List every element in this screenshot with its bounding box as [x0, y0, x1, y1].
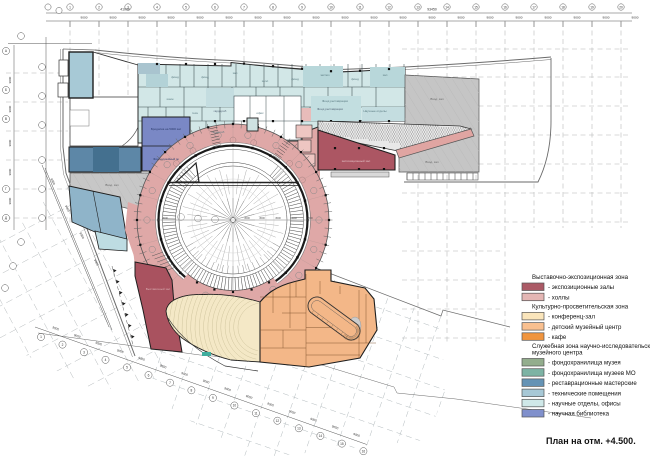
svg-text:4500: 4500	[162, 216, 168, 220]
svg-text:11: 11	[254, 411, 258, 415]
svg-text:9000: 9000	[400, 16, 407, 20]
svg-text:5: 5	[185, 5, 187, 9]
svg-text:6: 6	[148, 373, 150, 377]
svg-text:1: 1	[69, 5, 71, 9]
svg-text:6: 6	[214, 5, 216, 9]
svg-text:93450: 93450	[427, 8, 437, 12]
svg-text:Вход. зал: Вход. зал	[425, 160, 438, 164]
svg-text:4500: 4500	[259, 216, 265, 220]
svg-text:17: 17	[532, 5, 536, 9]
svg-text:7: 7	[243, 5, 245, 9]
svg-text:9000: 9000	[197, 16, 204, 20]
svg-text:14: 14	[445, 5, 449, 9]
svg-text:9000: 9000	[81, 16, 88, 20]
svg-text:9000: 9000	[487, 16, 494, 20]
svg-text:Вход. зал: Вход. зал	[430, 97, 443, 101]
svg-text:10: 10	[329, 5, 333, 9]
svg-text:экспоз: экспоз	[320, 73, 330, 77]
svg-text:4: 4	[156, 5, 158, 9]
svg-text:- фондохранилища музея: - фондохранилища музея	[548, 360, 621, 367]
svg-text:20: 20	[619, 5, 623, 9]
svg-text:5: 5	[126, 366, 128, 370]
svg-text:9000: 9000	[139, 16, 146, 20]
svg-text:9000: 9000	[8, 76, 12, 83]
svg-text:- холлы: - холлы	[548, 294, 569, 301]
svg-text:3: 3	[83, 350, 85, 354]
svg-text:9: 9	[301, 5, 303, 9]
svg-text:4: 4	[105, 358, 107, 362]
svg-text:9000: 9000	[574, 16, 581, 20]
svg-text:9000: 9000	[458, 16, 465, 20]
svg-text:Бродилка на 5000 экс: Бродилка на 5000 экс	[151, 127, 182, 131]
svg-text:4500: 4500	[307, 216, 313, 220]
svg-text:зал: зал	[383, 73, 388, 77]
svg-text:фонд: фонд	[351, 77, 359, 81]
svg-text:9000: 9000	[342, 16, 349, 20]
svg-text:13: 13	[297, 427, 301, 431]
svg-text:- технические помещения: - технические помещения	[548, 390, 621, 397]
svg-text:Фонд реставрации: Фонд реставрации	[317, 107, 343, 111]
svg-text:Культурно-просветительская зон: Культурно-просветительская зона	[532, 303, 629, 310]
svg-text:техн: техн	[192, 111, 198, 115]
svg-text:Г: Г	[5, 187, 7, 191]
svg-text:12: 12	[387, 5, 391, 9]
svg-text:9000: 9000	[8, 168, 12, 175]
svg-text:9000: 9000	[8, 197, 12, 204]
svg-text:Фонд музейный эк: Фонд музейный эк	[153, 157, 179, 161]
svg-text:Б: Б	[5, 88, 7, 92]
svg-text:7: 7	[169, 381, 171, 385]
svg-text:9000: 9000	[8, 139, 12, 146]
svg-text:9000: 9000	[371, 16, 378, 20]
svg-text:8: 8	[191, 389, 193, 393]
svg-text:19: 19	[590, 5, 594, 9]
svg-text:9000: 9000	[255, 16, 262, 20]
svg-text:9000: 9000	[8, 105, 12, 112]
svg-text:9000: 9000	[313, 16, 320, 20]
svg-text:фонд: фонд	[291, 77, 299, 81]
svg-text:9000: 9000	[632, 16, 639, 20]
svg-text:9000: 9000	[226, 16, 233, 20]
svg-text:Научные отделы: Научные отделы	[363, 109, 386, 113]
svg-text:8: 8	[272, 5, 274, 9]
svg-text:9: 9	[212, 396, 214, 400]
svg-text:Вход. зал: Вход. зал	[105, 183, 118, 187]
svg-text:холл: холл	[262, 79, 269, 83]
svg-text:15: 15	[340, 442, 344, 446]
svg-text:гардероб: гардероб	[212, 130, 225, 134]
svg-text:9000: 9000	[110, 16, 117, 20]
svg-text:экспозиционный зал: экспозиционный зал	[342, 159, 371, 163]
svg-text:9000: 9000	[429, 16, 436, 20]
svg-text:комн: комн	[167, 97, 174, 101]
svg-text:41000: 41000	[120, 8, 130, 12]
svg-text:18: 18	[561, 5, 565, 9]
svg-text:4500: 4500	[275, 216, 281, 220]
svg-text:фонд: фонд	[171, 75, 179, 79]
svg-text:- кафе: - кафе	[548, 334, 567, 341]
svg-text:- реставрационные мастерские: - реставрационные мастерские	[548, 380, 637, 387]
svg-text:9000: 9000	[168, 16, 175, 20]
svg-text:музейного центра: музейного центра	[532, 350, 583, 357]
svg-text:Выставочный зал: Выставочный зал	[146, 287, 171, 291]
svg-text:9000: 9000	[545, 16, 552, 20]
svg-text:офис: офис	[256, 111, 264, 115]
svg-text:Фонд реставрации: Фонд реставрации	[322, 99, 348, 103]
svg-text:В: В	[5, 117, 7, 121]
svg-text:- детский музейный центр: - детский музейный центр	[548, 324, 622, 331]
svg-text:- фондохранилища музеев МО: - фондохранилища музеев МО	[548, 370, 636, 377]
svg-text:- экспозиционные залы: - экспозиционные залы	[548, 284, 614, 291]
svg-text:фонд: фонд	[201, 75, 209, 79]
svg-text:2: 2	[62, 343, 64, 347]
svg-text:14: 14	[319, 434, 323, 438]
svg-text:гардероб: гардероб	[214, 109, 227, 113]
svg-text:2: 2	[98, 5, 100, 9]
svg-text:зал: зал	[233, 71, 238, 75]
svg-text:9000: 9000	[284, 16, 291, 20]
svg-text:4500: 4500	[244, 216, 250, 220]
svg-text:16: 16	[362, 449, 366, 453]
svg-text:9000: 9000	[603, 16, 610, 20]
svg-text:16: 16	[503, 5, 507, 9]
svg-text:План на отм. +4.500.: План на отм. +4.500.	[546, 436, 636, 446]
svg-text:- научные отделы, офисы: - научные отделы, офисы	[548, 401, 621, 408]
svg-text:15: 15	[474, 5, 478, 9]
svg-text:10: 10	[233, 404, 237, 408]
svg-text:11: 11	[358, 5, 362, 9]
svg-text:- конференц-зал: - конференц-зал	[548, 314, 595, 321]
svg-text:- научная библиотека: - научная библиотека	[548, 411, 610, 418]
svg-text:9000: 9000	[516, 16, 523, 20]
svg-text:Выставочно-экспозиционная зона: Выставочно-экспозиционная зона	[532, 274, 629, 281]
svg-text:13: 13	[416, 5, 420, 9]
svg-text:4500: 4500	[291, 216, 297, 220]
svg-text:12: 12	[276, 419, 280, 423]
svg-text:1: 1	[40, 335, 42, 339]
